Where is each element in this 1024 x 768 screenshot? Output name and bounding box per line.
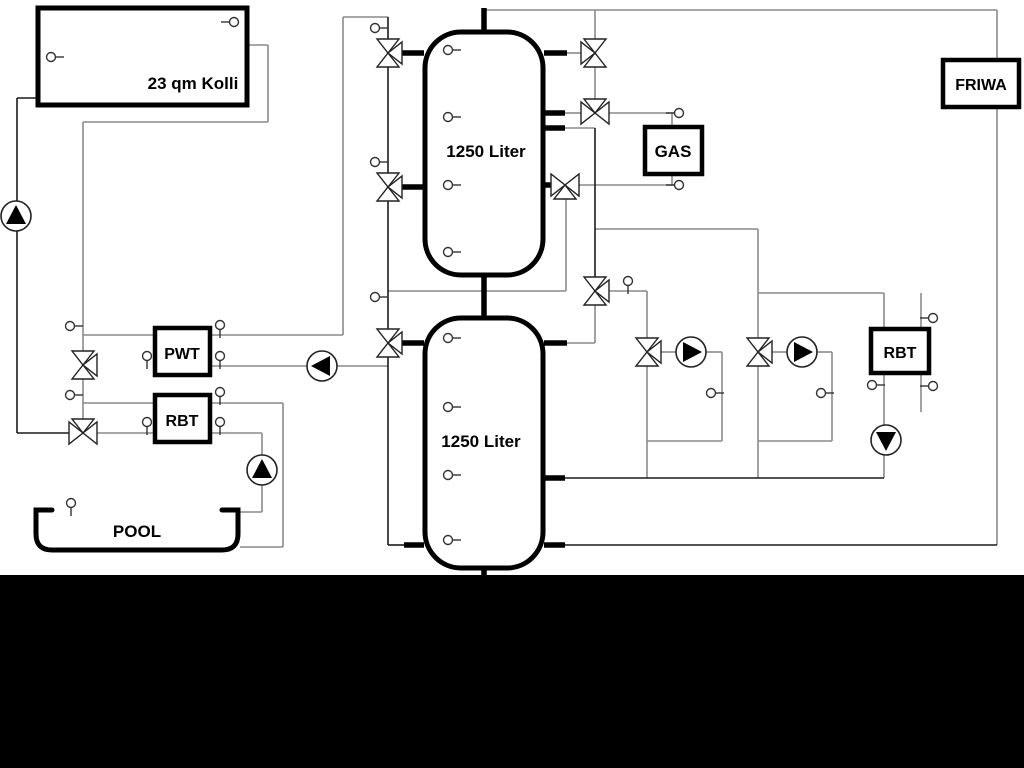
rbt-right-pump-icon (871, 425, 901, 455)
collector-pump-icon (1, 201, 31, 231)
valve-tank1-top-left (377, 39, 402, 67)
rbt-left-label: RBT (166, 413, 199, 430)
valve-heating-circuit-1 (636, 338, 661, 366)
pwt-in-sensor-icon (143, 352, 152, 370)
solar-secondary-pump-icon (307, 351, 337, 381)
valve-heating-circuit-2 (747, 338, 772, 366)
gas-supply-sensor-icon (666, 109, 684, 118)
tank-bottom-label: 1250 Liter (441, 432, 521, 451)
riser-sensor-2-icon (371, 158, 389, 167)
pool-label: POOL (113, 522, 161, 541)
schematic-canvas: 23 qm Kolli 1250 Liter 1250 Liter GAS FR… (0, 0, 1024, 768)
well-sensor-1-icon (920, 314, 938, 323)
gas-label: GAS (655, 142, 692, 161)
friwa-label: FRIWA (955, 77, 1007, 94)
pool-sensor-icon (67, 499, 76, 517)
left-riser-sensor-1-icon (66, 322, 84, 331)
pool-pump-icon (247, 455, 277, 485)
valve-gas-return (551, 174, 579, 199)
gas-return-sensor-icon (666, 181, 684, 190)
riser-sensor-1-icon (371, 24, 389, 33)
valve-solar-primary (72, 351, 97, 379)
collector-label: 23 qm Kolli (148, 74, 239, 93)
bottom-black-bar (0, 575, 1024, 768)
riser-sensor-3-icon (371, 293, 389, 302)
valve-tank1-top-right (581, 39, 606, 67)
rbt-right-return-sensor-icon (868, 381, 886, 390)
hydraulic-schematic: 23 qm Kolli 1250 Liter 1250 Liter GAS FR… (0, 0, 1024, 768)
valve-gas-supply (581, 99, 609, 124)
rbt-right-label: RBT (884, 345, 917, 362)
heating-circuit-1-pump-icon (676, 337, 706, 367)
well-sensor-2-icon (920, 382, 938, 391)
pwt-label: PWT (164, 346, 200, 363)
valve-tank1-mid-left (377, 173, 402, 201)
left-riser-sensor-2-icon (66, 391, 84, 400)
valve-tank2-charge (377, 329, 402, 357)
valve-heating-distributor (584, 277, 609, 305)
valve-pool-primary (69, 419, 97, 444)
tank-top-label: 1250 Liter (446, 142, 526, 161)
heating-circuit-2-pump-icon (787, 337, 817, 367)
